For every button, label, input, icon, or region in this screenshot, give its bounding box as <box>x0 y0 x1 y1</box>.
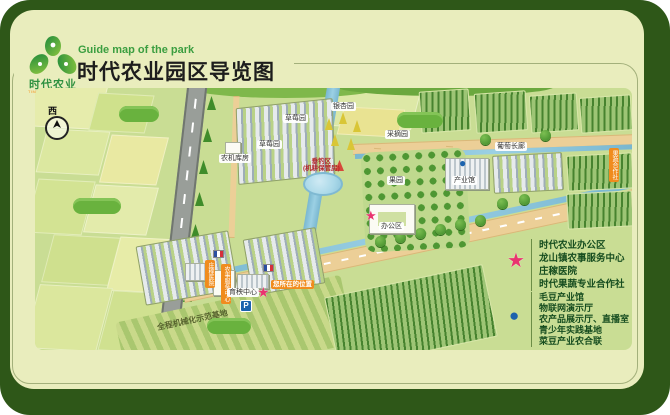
compass-icon <box>45 116 69 140</box>
industry-hall-building <box>445 158 489 190</box>
legend-item: 时代果蔬专业合作社 <box>539 278 625 291</box>
conifer-tree-icon <box>207 96 216 110</box>
legend-item: 菜豆产业农合联 <box>539 336 629 347</box>
legend-item: 龙山镇农事服务中心 <box>539 252 625 265</box>
tree-icon <box>415 228 426 239</box>
legend-item: 时代农业办公区 <box>539 239 625 252</box>
conifer-tree-icon <box>195 192 204 206</box>
farm-service-tag: 农事服务中心 <box>221 264 231 304</box>
crop-hospital-tag: 庄稼医院 <box>205 260 215 288</box>
you-are-here-label: 您所在的位置 <box>271 280 314 289</box>
crop-rows <box>474 90 529 134</box>
bush <box>397 112 443 128</box>
park-map: 西 全程机械化示范基地 <box>35 88 632 350</box>
page-title: 时代农业园区导览图 <box>77 56 275 86</box>
grape-corridor-label: 葡萄长廊 <box>495 142 527 151</box>
header-subtitle-en: Guide map of the park <box>78 44 194 56</box>
tree-icon <box>540 130 551 141</box>
crop-rows <box>566 190 632 229</box>
conifer-tree-icon <box>203 128 212 142</box>
strawberry-garden-label: 草莓园 <box>257 140 282 149</box>
legend-item: 农产品展示厅、直播室 <box>539 314 629 325</box>
tree-icon <box>475 215 486 226</box>
office-star-marker: ★ <box>365 208 377 224</box>
machine-shed-label: 农机库房 <box>219 154 251 163</box>
tree-icon <box>455 219 466 230</box>
industry-hall-dot-marker: ● <box>459 156 466 170</box>
crop-rows <box>324 264 498 350</box>
fishing-area-sublabel: (机耕保管房) <box>303 165 340 172</box>
bush <box>73 198 121 214</box>
conifer-tree-icon <box>199 160 208 174</box>
pond <box>303 172 343 196</box>
tree-icon <box>435 224 446 235</box>
legend-item: 毛豆产业馆 <box>539 292 629 303</box>
poster-frame: 时代农业 TIMES AGRICULTURE Guide map of the … <box>0 0 670 415</box>
legend-dot-icon: ● <box>509 306 519 326</box>
you-are-here-star-marker: ★ <box>257 284 270 301</box>
flag-icon <box>263 264 274 272</box>
coop-tag: 果蔬合作社 <box>609 148 619 182</box>
tree-icon <box>519 194 530 205</box>
tree-icon <box>497 198 508 209</box>
flag-icon <box>213 250 224 258</box>
strawberry-garden-label: 草莓园 <box>283 114 308 123</box>
legend-star-icon: ★ <box>507 248 525 273</box>
tree-icon <box>480 134 491 145</box>
crop-rows <box>579 94 632 134</box>
fishing-area-label: 垂钓区 <box>312 158 332 165</box>
orchard-label: 果园 <box>387 176 405 185</box>
picking-garden-label: 采摘园 <box>385 130 410 139</box>
legend-item: 庄稼医院 <box>539 265 625 278</box>
legend-item: 青少年实践基地 <box>539 325 629 336</box>
office-label: 办公区 <box>379 222 404 231</box>
tree-icon <box>375 236 386 247</box>
industry-hall-label: 产业馆 <box>452 176 477 185</box>
seedling-center-label: 育秧中心 <box>227 288 259 297</box>
greenhouse-block <box>492 152 564 194</box>
crop-rows <box>566 152 632 191</box>
bush <box>119 106 159 122</box>
legend-item: 物联网演示厅 <box>539 303 629 314</box>
crop-rows <box>529 92 580 133</box>
machine-shed-building <box>225 142 241 154</box>
legend-star-list: 时代农业办公区 龙山镇农事服务中心 庄稼医院 时代果蔬专业合作社 <box>531 239 625 291</box>
legend-dot-list: 毛豆产业馆 物联网演示厅 农产品展示厅、直播室 青少年实践基地 菜豆产业农合联 <box>531 292 629 347</box>
parking-sign: P <box>240 300 252 312</box>
ginkgo-label: 银杏园 <box>331 102 356 111</box>
bush <box>207 318 251 334</box>
